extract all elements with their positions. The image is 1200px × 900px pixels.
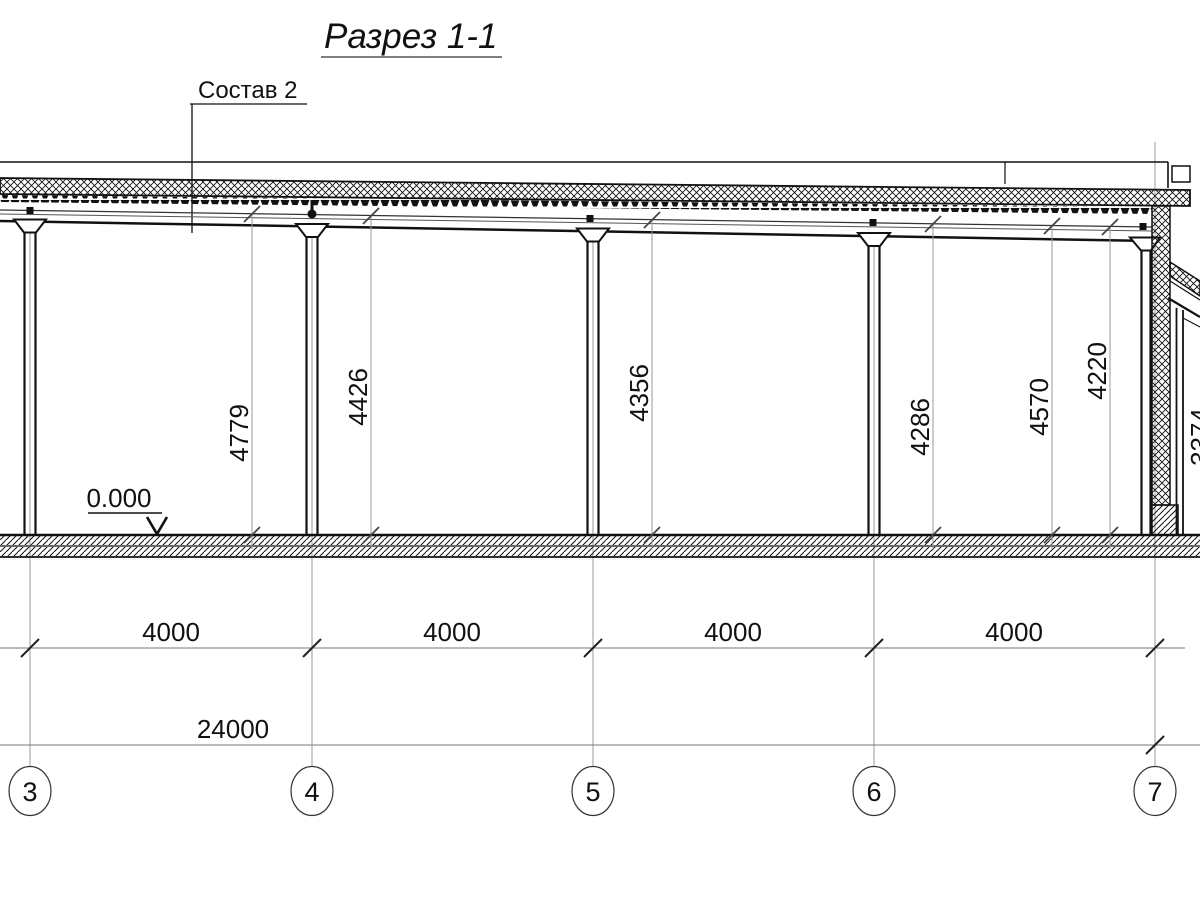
axis-label: 3 <box>22 777 37 807</box>
total-dim-value: 24000 <box>197 714 269 744</box>
floor-hatch-band <box>0 547 1200 556</box>
floor-slab <box>0 535 1200 557</box>
floor-hatch-band <box>0 536 1200 545</box>
axis-marker-4: 4 <box>291 767 333 816</box>
splice-bolt-dot <box>308 210 317 219</box>
axis-label: 4 <box>304 777 319 807</box>
dim-value-vertical: 4220 <box>1082 342 1112 400</box>
bay-dim-value: 4000 <box>985 617 1043 647</box>
axis-label: 5 <box>585 777 600 807</box>
axis-marker-7: 7 <box>1134 767 1176 816</box>
connection-plate <box>1140 223 1147 230</box>
column-capital <box>858 233 890 246</box>
dim-value-vertical: 4356 <box>624 364 654 422</box>
bay-dim-value: 4000 <box>423 617 481 647</box>
connection-plate <box>27 207 34 214</box>
total-dimension-row: 24000 <box>0 714 1200 754</box>
dim-value-vertical-clipped: 3374 <box>1185 408 1200 466</box>
axis-label: 7 <box>1147 777 1162 807</box>
level-mark-value: 0.000 <box>86 483 151 513</box>
connection-plate <box>587 215 594 222</box>
bay-dim-value: 4000 <box>704 617 762 647</box>
vertical-dimension-lines <box>252 214 1110 549</box>
callout: Состав 2 <box>190 77 307 233</box>
axis-marker-6: 6 <box>853 767 895 816</box>
axis-marker-5: 5 <box>572 767 614 816</box>
axis-markers: 3 4 5 6 7 <box>9 767 1176 816</box>
dim-value-vertical: 4286 <box>905 398 935 456</box>
masonry-wall <box>1152 206 1170 505</box>
column-capital <box>14 220 46 233</box>
dim-value-vertical: 4426 <box>343 368 373 426</box>
level-arrow-icon <box>147 517 167 534</box>
bay-dim-value: 4000 <box>142 617 200 647</box>
parapet-flashing <box>1172 166 1190 182</box>
wall-base-block <box>1152 505 1178 535</box>
title-block: Разрез 1-1 <box>321 17 502 57</box>
vertical-dimensions: 4779 4426 4356 4286 4570 4220 3374 <box>224 206 1200 549</box>
drawing-title: Разрез 1-1 <box>324 17 497 56</box>
end-wall <box>1152 206 1200 535</box>
columns <box>14 220 1160 536</box>
dim-value-vertical: 4779 <box>224 404 254 462</box>
lower-roof-edge-line <box>1183 318 1200 327</box>
connection-plate <box>870 219 877 226</box>
axis-label: 6 <box>866 777 881 807</box>
lower-roof-beam-line <box>1168 298 1200 317</box>
column-capital <box>296 224 328 237</box>
callout-label: Состав 2 <box>198 77 298 104</box>
axis-marker-3: 3 <box>9 767 51 816</box>
drawing-canvas: Разрез 1-1 Состав 2 <box>0 0 1200 900</box>
dim-value-vertical: 4570 <box>1024 378 1054 436</box>
level-mark: 0.000 <box>86 483 167 534</box>
column-capital <box>577 229 609 242</box>
vertical-dimension-ticks <box>244 206 1118 543</box>
section-drawing: Разрез 1-1 Состав 2 <box>0 0 1200 900</box>
